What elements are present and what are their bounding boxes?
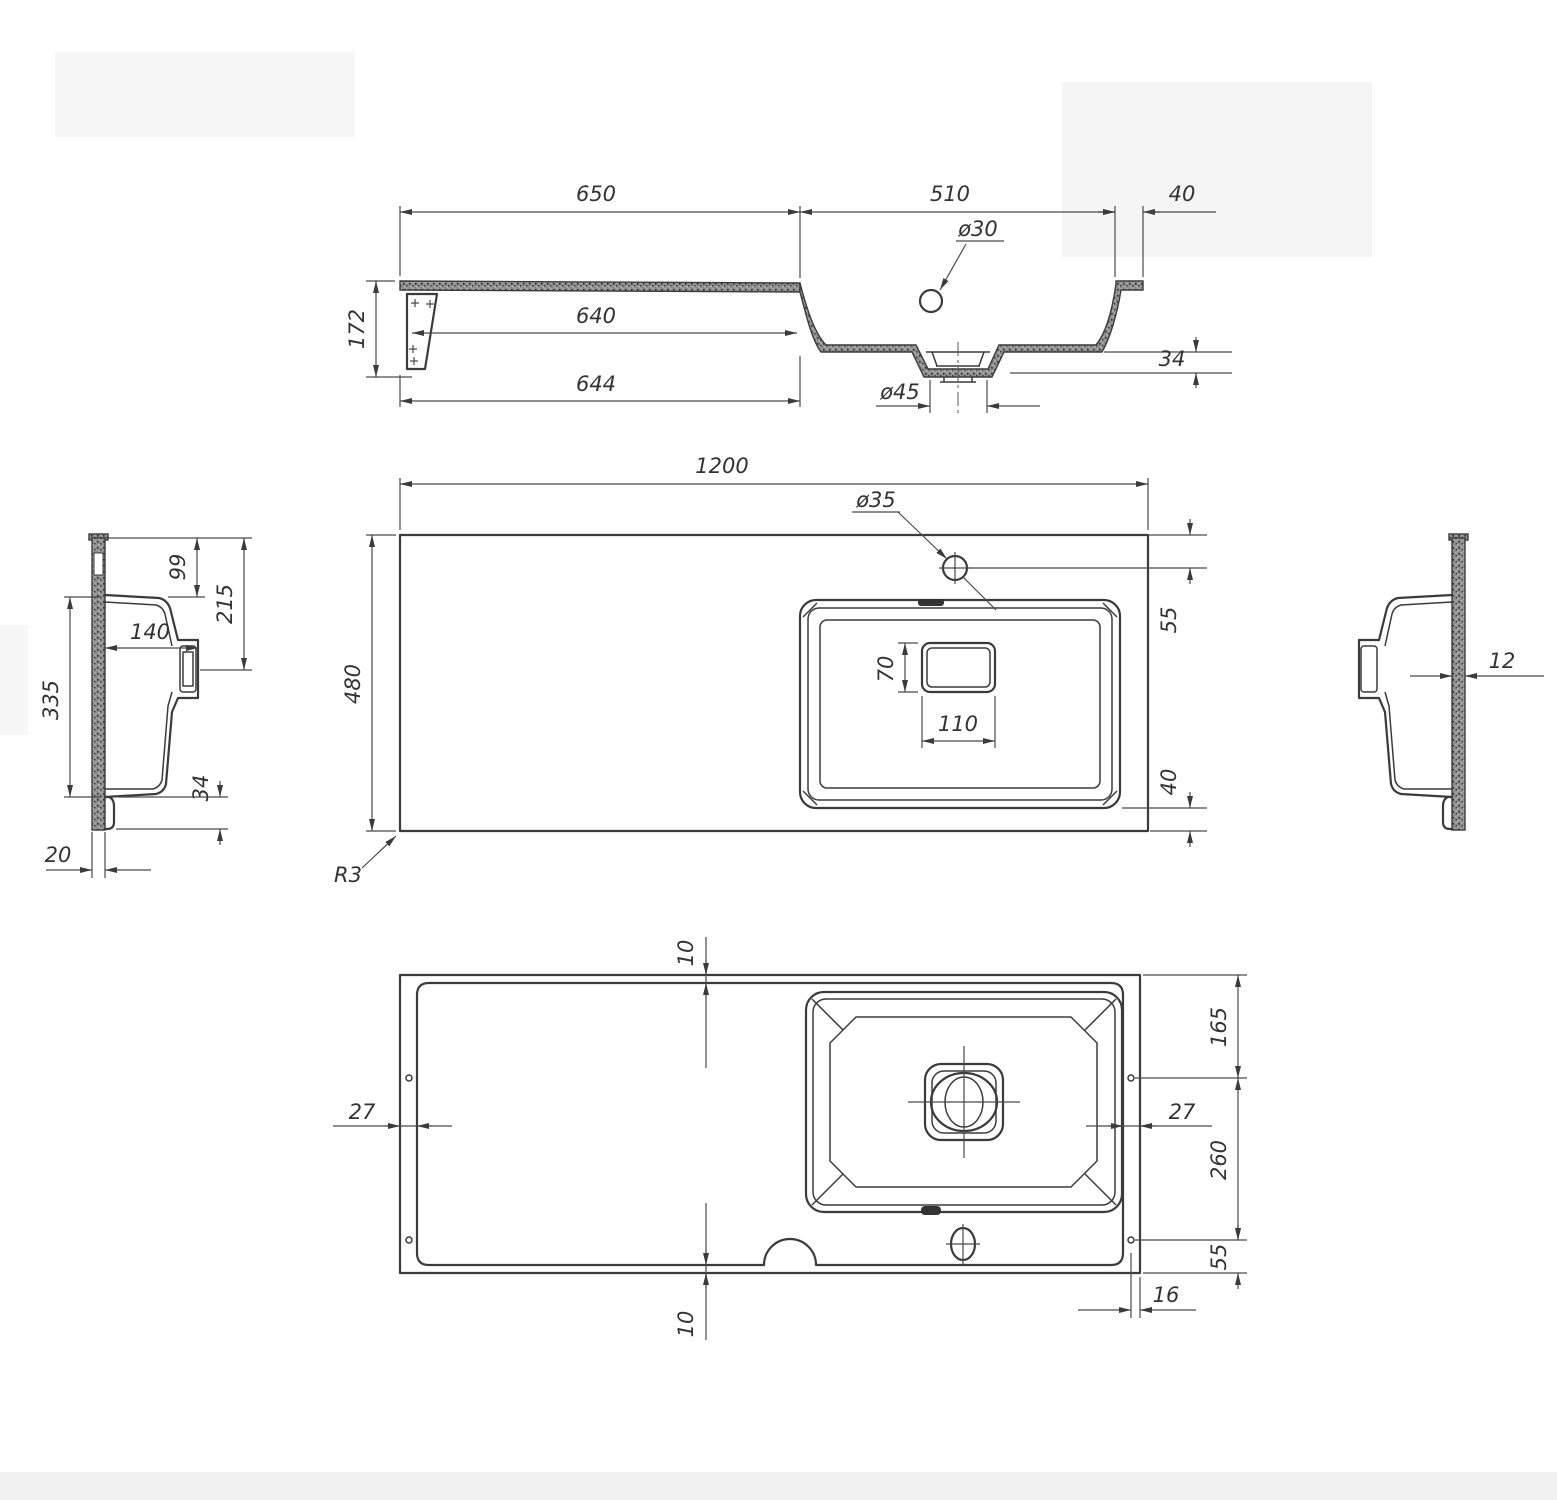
dim-34-right-label: 34	[1159, 347, 1186, 371]
dim-10-bottom-label: 10	[674, 1311, 698, 1338]
dim-70-label: 70	[874, 656, 898, 683]
dim-99-label: 99	[166, 554, 190, 581]
bottom-screw-holes	[406, 1075, 1134, 1243]
dim-20-label: 20	[45, 843, 72, 867]
bottom-overflow-mark	[921, 1206, 941, 1215]
dim-1200-label: 1200	[695, 454, 748, 478]
bottom-outline	[400, 975, 1140, 1273]
bottom-dimensions: 10 10 27 27 165 260	[333, 937, 1247, 1340]
plan-geometry	[400, 535, 1148, 831]
dim-10-top-label: 10	[674, 940, 698, 967]
dim-27-right-label: 27	[1169, 1100, 1196, 1124]
dim-172-label: 172	[345, 309, 369, 349]
dim-640-label: 640	[576, 304, 616, 328]
dim-335-label: 335	[39, 680, 63, 720]
mounting-bracket	[407, 294, 437, 369]
bowl-outer-rim	[800, 600, 1120, 808]
dim-16-label: 16	[1153, 1283, 1180, 1307]
dim-215-label: 215	[213, 584, 237, 624]
left-profile-dimensions: 99 215 140 335 34 20	[39, 538, 252, 878]
right-profile-dimensions: 12	[1410, 649, 1544, 676]
technical-drawing-canvas: 650 510 40 ø30 640 644 172 34	[0, 0, 1557, 1500]
bowl-wall-top-edge	[820, 620, 1100, 788]
left-bottom-lip	[105, 797, 114, 829]
dim-40-plan-label: 40	[1157, 769, 1181, 796]
faucet-hole	[939, 552, 971, 584]
dim-34-left-label: 34	[189, 775, 213, 802]
plan-dimensions: 1200 ø35 480 55 40 70	[334, 454, 1207, 887]
left-wall	[92, 538, 105, 830]
dim-27-left-label: 27	[349, 1100, 376, 1124]
overflow-notch	[918, 599, 944, 606]
view-right-profile: 12	[1359, 534, 1544, 830]
dim-12-label: 12	[1489, 649, 1516, 673]
drainboard-slab	[400, 281, 800, 292]
dim-110-label: 110	[938, 712, 978, 736]
dim-260-label: 260	[1207, 1140, 1231, 1180]
bottom-geometry	[400, 975, 1140, 1273]
overflow-hole	[920, 290, 942, 312]
bowl-section-wall	[800, 281, 1143, 377]
drain-opening	[922, 643, 995, 692]
sink-drawing-svg: 650 510 40 ø30 640 644 172 34	[0, 0, 1557, 1500]
bottom-rim-contour	[417, 983, 1123, 1265]
view-bottom: 10 10 27 27 165 260	[333, 937, 1247, 1340]
right-profile-geometry	[1359, 534, 1468, 830]
bowl-corner-facets	[803, 603, 1117, 805]
dim-o45-label: ø45	[879, 380, 920, 404]
dim-510-label: 510	[930, 182, 970, 206]
bottom-drain-assembly	[908, 1046, 1020, 1158]
drain-opening-inner	[927, 648, 990, 687]
dim-644-label: 644	[576, 372, 616, 396]
dim-140-label: 140	[130, 620, 170, 644]
dim-55-bottom-label: 55	[1207, 1244, 1231, 1271]
background-artifacts	[0, 52, 1557, 1500]
dim-55-plan-label: 55	[1157, 607, 1181, 634]
dim-o30-label: ø30	[957, 217, 998, 241]
view-plan: 1200 ø35 480 55 40 70	[334, 454, 1207, 887]
dim-r3-label: R3	[334, 863, 362, 887]
dim-650-label: 650	[576, 182, 616, 206]
dim-480-label: 480	[341, 664, 365, 704]
dim-165-label: 165	[1207, 1007, 1231, 1047]
bowl-inner-rim	[808, 608, 1112, 800]
side-section-geometry	[400, 281, 1143, 416]
view-left-profile: 99 215 140 335 34 20	[39, 534, 252, 878]
bottom-faucet-hole	[946, 1224, 980, 1264]
dim-o35-label: ø35	[855, 488, 896, 512]
countertop-outline	[400, 535, 1148, 831]
left-drain-socket-inner	[183, 652, 193, 686]
dim-40-top-label: 40	[1169, 182, 1196, 206]
left-wall-slot	[94, 553, 103, 575]
